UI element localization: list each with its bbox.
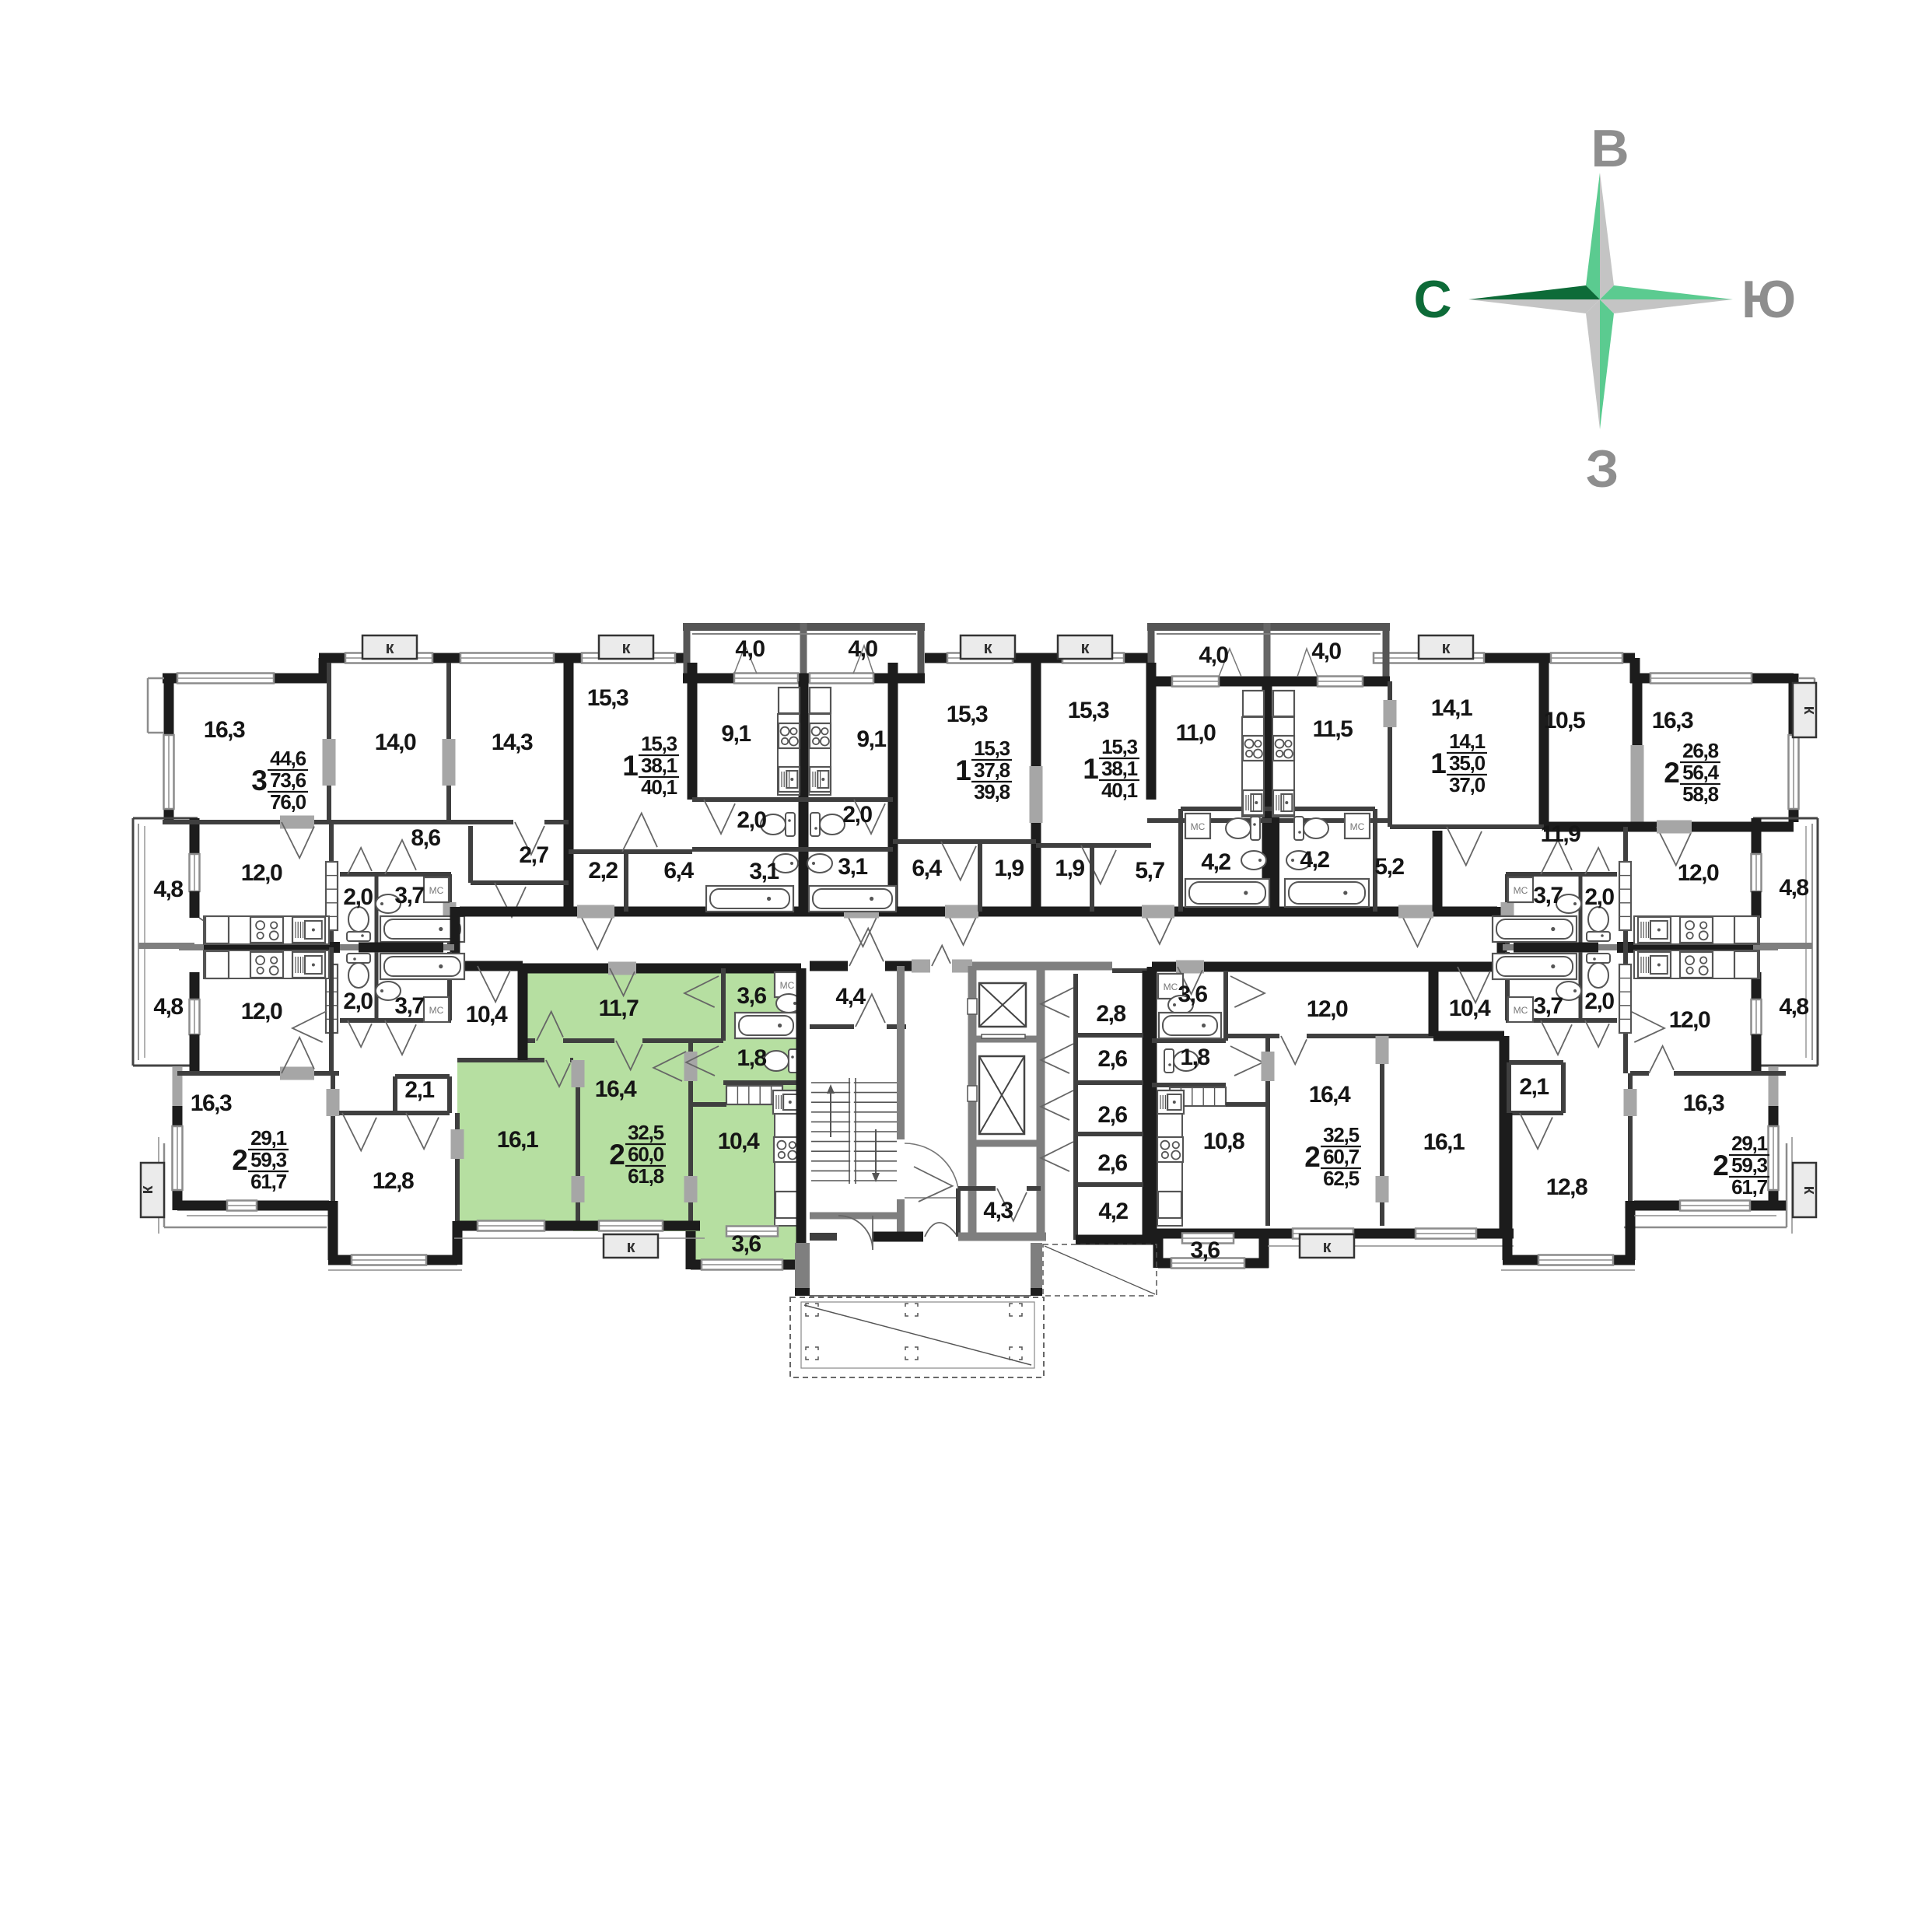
svg-text:4,8: 4,8 xyxy=(153,994,183,1020)
svg-text:3,6: 3,6 xyxy=(1178,982,1207,1007)
svg-text:16,3: 16,3 xyxy=(1683,1090,1724,1116)
svg-text:11,7: 11,7 xyxy=(599,996,639,1021)
svg-text:2,2: 2,2 xyxy=(588,858,618,884)
svg-text:9,1: 9,1 xyxy=(721,721,751,747)
svg-text:6,4: 6,4 xyxy=(912,856,942,881)
svg-text:4,4: 4,4 xyxy=(835,984,866,1010)
svg-text:4,2: 4,2 xyxy=(1098,1199,1128,1224)
svg-text:32,5: 32,5 xyxy=(1323,1123,1360,1146)
svg-text:16,4: 16,4 xyxy=(1309,1082,1351,1108)
svg-text:76,0: 76,0 xyxy=(270,790,306,814)
svg-text:3: 3 xyxy=(251,765,267,796)
svg-text:2,1: 2,1 xyxy=(1519,1074,1549,1100)
svg-text:2,1: 2,1 xyxy=(404,1077,434,1103)
svg-text:З: З xyxy=(1586,439,1619,499)
svg-text:15,3: 15,3 xyxy=(1068,698,1109,723)
svg-text:1,8: 1,8 xyxy=(737,1045,766,1071)
svg-text:1,8: 1,8 xyxy=(1180,1045,1209,1070)
svg-text:2: 2 xyxy=(232,1144,247,1176)
svg-text:40,1: 40,1 xyxy=(1101,779,1138,802)
svg-text:61,7: 61,7 xyxy=(1731,1175,1768,1199)
svg-text:40,1: 40,1 xyxy=(641,775,677,799)
svg-text:3,6: 3,6 xyxy=(1190,1237,1220,1263)
svg-text:16,1: 16,1 xyxy=(1423,1129,1465,1155)
svg-text:14,1: 14,1 xyxy=(1449,730,1486,753)
svg-text:к: к xyxy=(137,1185,156,1195)
svg-text:59,3: 59,3 xyxy=(250,1148,287,1171)
svg-text:10,4: 10,4 xyxy=(1449,996,1491,1021)
svg-text:В: В xyxy=(1591,119,1629,178)
svg-text:МС: МС xyxy=(1350,821,1365,832)
svg-text:39,8: 39,8 xyxy=(974,780,1010,803)
svg-text:37,0: 37,0 xyxy=(1449,773,1486,796)
svg-text:44,6: 44,6 xyxy=(270,747,306,770)
svg-text:15,3: 15,3 xyxy=(947,702,988,727)
svg-text:2,6: 2,6 xyxy=(1097,1102,1127,1128)
svg-text:5,2: 5,2 xyxy=(1374,854,1404,880)
svg-text:4,8: 4,8 xyxy=(153,877,183,902)
svg-text:10,4: 10,4 xyxy=(466,1002,508,1027)
svg-text:1,9: 1,9 xyxy=(994,856,1024,881)
svg-text:3,6: 3,6 xyxy=(731,1231,761,1257)
svg-text:2,7: 2,7 xyxy=(519,842,548,868)
svg-text:2,6: 2,6 xyxy=(1097,1046,1127,1072)
svg-text:5,7: 5,7 xyxy=(1135,858,1164,884)
svg-text:8,6: 8,6 xyxy=(411,825,440,851)
svg-text:2: 2 xyxy=(1304,1141,1320,1173)
svg-text:9,1: 9,1 xyxy=(856,726,886,752)
svg-text:к: к xyxy=(1801,705,1820,715)
svg-text:4,2: 4,2 xyxy=(1201,849,1230,875)
svg-text:2,0: 2,0 xyxy=(1584,884,1614,910)
svg-text:14,0: 14,0 xyxy=(375,730,416,755)
svg-text:МС: МС xyxy=(429,885,444,896)
svg-text:38,1: 38,1 xyxy=(641,754,677,777)
svg-text:3,7: 3,7 xyxy=(394,993,424,1019)
svg-text:МС: МС xyxy=(429,1005,444,1016)
svg-text:60,7: 60,7 xyxy=(1323,1145,1360,1168)
svg-text:к: к xyxy=(1080,638,1090,657)
svg-text:12,8: 12,8 xyxy=(373,1168,414,1194)
svg-text:к: к xyxy=(626,1237,635,1256)
svg-text:16,4: 16,4 xyxy=(595,1076,637,1102)
svg-text:73,6: 73,6 xyxy=(270,768,306,792)
svg-text:12,8: 12,8 xyxy=(1546,1174,1587,1200)
svg-text:10,4: 10,4 xyxy=(718,1129,760,1154)
svg-text:3,6: 3,6 xyxy=(737,983,766,1009)
svg-text:56,4: 56,4 xyxy=(1682,761,1720,784)
svg-text:2,0: 2,0 xyxy=(842,802,872,828)
svg-text:16,3: 16,3 xyxy=(204,717,245,743)
svg-text:11,5: 11,5 xyxy=(1313,716,1353,742)
svg-text:38,1: 38,1 xyxy=(1101,757,1138,780)
svg-text:2,0: 2,0 xyxy=(343,989,373,1014)
svg-text:МС: МС xyxy=(1191,821,1206,832)
svg-text:11,0: 11,0 xyxy=(1176,720,1216,746)
svg-text:4,2: 4,2 xyxy=(1300,847,1329,873)
svg-text:3,7: 3,7 xyxy=(1533,993,1563,1019)
svg-text:11,9: 11,9 xyxy=(1541,821,1581,847)
svg-text:15,3: 15,3 xyxy=(974,737,1010,760)
svg-text:10,5: 10,5 xyxy=(1544,708,1585,733)
svg-text:1: 1 xyxy=(1083,753,1098,785)
svg-text:МС: МС xyxy=(1514,885,1528,896)
svg-text:3,7: 3,7 xyxy=(394,883,424,908)
svg-text:3,1: 3,1 xyxy=(749,859,779,884)
svg-text:32,5: 32,5 xyxy=(628,1121,664,1144)
svg-text:12,0: 12,0 xyxy=(1678,860,1719,886)
svg-text:к: к xyxy=(983,638,992,657)
svg-text:к: к xyxy=(621,638,631,657)
svg-text:4,0: 4,0 xyxy=(1311,639,1341,664)
svg-text:4,3: 4,3 xyxy=(983,1198,1013,1223)
svg-text:1: 1 xyxy=(955,754,971,786)
svg-text:МС: МС xyxy=(1164,982,1178,992)
svg-text:4,8: 4,8 xyxy=(1779,875,1808,901)
svg-text:15,3: 15,3 xyxy=(587,685,628,711)
svg-text:4,0: 4,0 xyxy=(1199,642,1228,668)
svg-text:МС: МС xyxy=(1514,1005,1528,1016)
svg-text:12,0: 12,0 xyxy=(241,860,282,886)
svg-text:4,8: 4,8 xyxy=(1779,994,1808,1020)
svg-text:3,7: 3,7 xyxy=(1533,883,1563,908)
svg-text:29,1: 29,1 xyxy=(250,1126,287,1150)
svg-text:12,0: 12,0 xyxy=(1669,1007,1710,1033)
svg-text:16,3: 16,3 xyxy=(191,1090,232,1116)
svg-text:1: 1 xyxy=(1430,747,1446,779)
svg-text:10,8: 10,8 xyxy=(1203,1129,1244,1154)
svg-text:к: к xyxy=(1441,638,1451,657)
svg-text:к: к xyxy=(1322,1237,1332,1256)
svg-text:37,8: 37,8 xyxy=(974,758,1010,782)
svg-text:58,8: 58,8 xyxy=(1682,782,1719,806)
svg-text:29,1: 29,1 xyxy=(1731,1132,1768,1155)
svg-text:2,0: 2,0 xyxy=(1584,989,1614,1014)
svg-text:15,3: 15,3 xyxy=(1101,735,1138,758)
svg-text:12,0: 12,0 xyxy=(241,999,282,1024)
svg-text:Ю: Ю xyxy=(1741,270,1796,329)
svg-text:2,8: 2,8 xyxy=(1096,1001,1125,1027)
svg-text:14,1: 14,1 xyxy=(1431,695,1472,721)
svg-text:С: С xyxy=(1413,270,1451,329)
svg-text:6,4: 6,4 xyxy=(663,858,694,884)
svg-text:1: 1 xyxy=(622,750,638,782)
svg-text:26,8: 26,8 xyxy=(1682,739,1719,762)
svg-text:15,3: 15,3 xyxy=(641,732,677,755)
svg-text:к: к xyxy=(385,638,394,657)
svg-text:35,0: 35,0 xyxy=(1449,751,1486,775)
svg-text:2,6: 2,6 xyxy=(1097,1150,1127,1176)
svg-text:2,0: 2,0 xyxy=(737,807,766,833)
svg-text:16,3: 16,3 xyxy=(1652,708,1693,733)
svg-text:1,9: 1,9 xyxy=(1055,856,1084,881)
svg-text:2,0: 2,0 xyxy=(343,884,373,910)
svg-text:59,3: 59,3 xyxy=(1731,1153,1768,1177)
svg-text:61,7: 61,7 xyxy=(250,1170,287,1193)
svg-text:2: 2 xyxy=(1664,757,1679,789)
svg-text:МС: МС xyxy=(780,980,795,991)
svg-text:3,1: 3,1 xyxy=(838,854,867,880)
svg-text:61,8: 61,8 xyxy=(628,1164,664,1188)
svg-text:60,0: 60,0 xyxy=(628,1143,664,1166)
svg-text:2: 2 xyxy=(1713,1150,1728,1181)
svg-text:4,0: 4,0 xyxy=(848,636,877,662)
svg-text:62,5: 62,5 xyxy=(1323,1167,1360,1190)
svg-text:14,3: 14,3 xyxy=(492,730,533,755)
svg-text:4,0: 4,0 xyxy=(735,636,765,662)
svg-text:2: 2 xyxy=(609,1139,625,1171)
svg-text:12,0: 12,0 xyxy=(1307,996,1348,1022)
svg-text:16,1: 16,1 xyxy=(497,1127,538,1153)
svg-text:к: к xyxy=(1801,1185,1820,1195)
